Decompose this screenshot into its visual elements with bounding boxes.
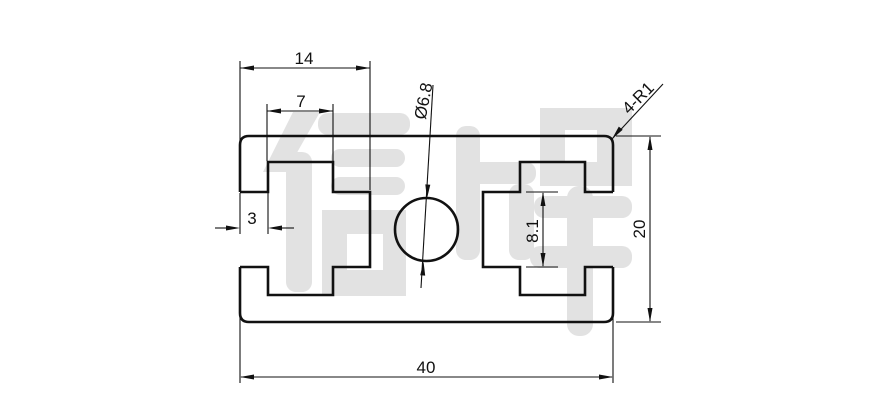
watermark-stroke: [567, 186, 593, 336]
arrowhead: [268, 226, 282, 231]
dim-profile-width-label: 40: [417, 358, 436, 377]
dim-hole-diameter-label: Ø6.8: [411, 81, 437, 121]
watermark: [263, 108, 632, 336]
dim-hole-diameter: Ø6.8: [411, 81, 437, 288]
arrowhead: [226, 226, 240, 231]
dim-profile-width: 40: [240, 316, 613, 383]
watermark-stroke: [331, 149, 405, 167]
watermark-stroke: [456, 126, 480, 260]
arrowhead: [648, 308, 653, 322]
dim-slot-depth-label: 14: [295, 49, 314, 68]
arrowhead: [319, 109, 333, 114]
watermark-stroke: [456, 162, 536, 184]
dim-opening-depth: 3: [215, 193, 294, 234]
arrowhead: [599, 375, 613, 380]
dim-chamber-width-label: 7: [296, 92, 305, 111]
technical-drawing-canvas: 14 7 3 8.1 20: [0, 0, 880, 420]
dim-profile-height-label: 20: [630, 220, 649, 239]
arrowhead: [648, 136, 653, 150]
arrowhead: [240, 66, 254, 71]
watermark-stroke: [322, 210, 406, 296]
arrowhead: [267, 109, 281, 114]
dim-opening-depth-label: 3: [247, 209, 256, 228]
arrowhead: [356, 66, 370, 71]
watermark-stroke: [318, 113, 410, 135]
arrowhead: [240, 375, 254, 380]
dim-slot-height-label: 8.1: [523, 219, 542, 243]
profile-drawing: 14 7 3 8.1 20: [0, 0, 880, 420]
watermark-stroke: [286, 152, 312, 292]
